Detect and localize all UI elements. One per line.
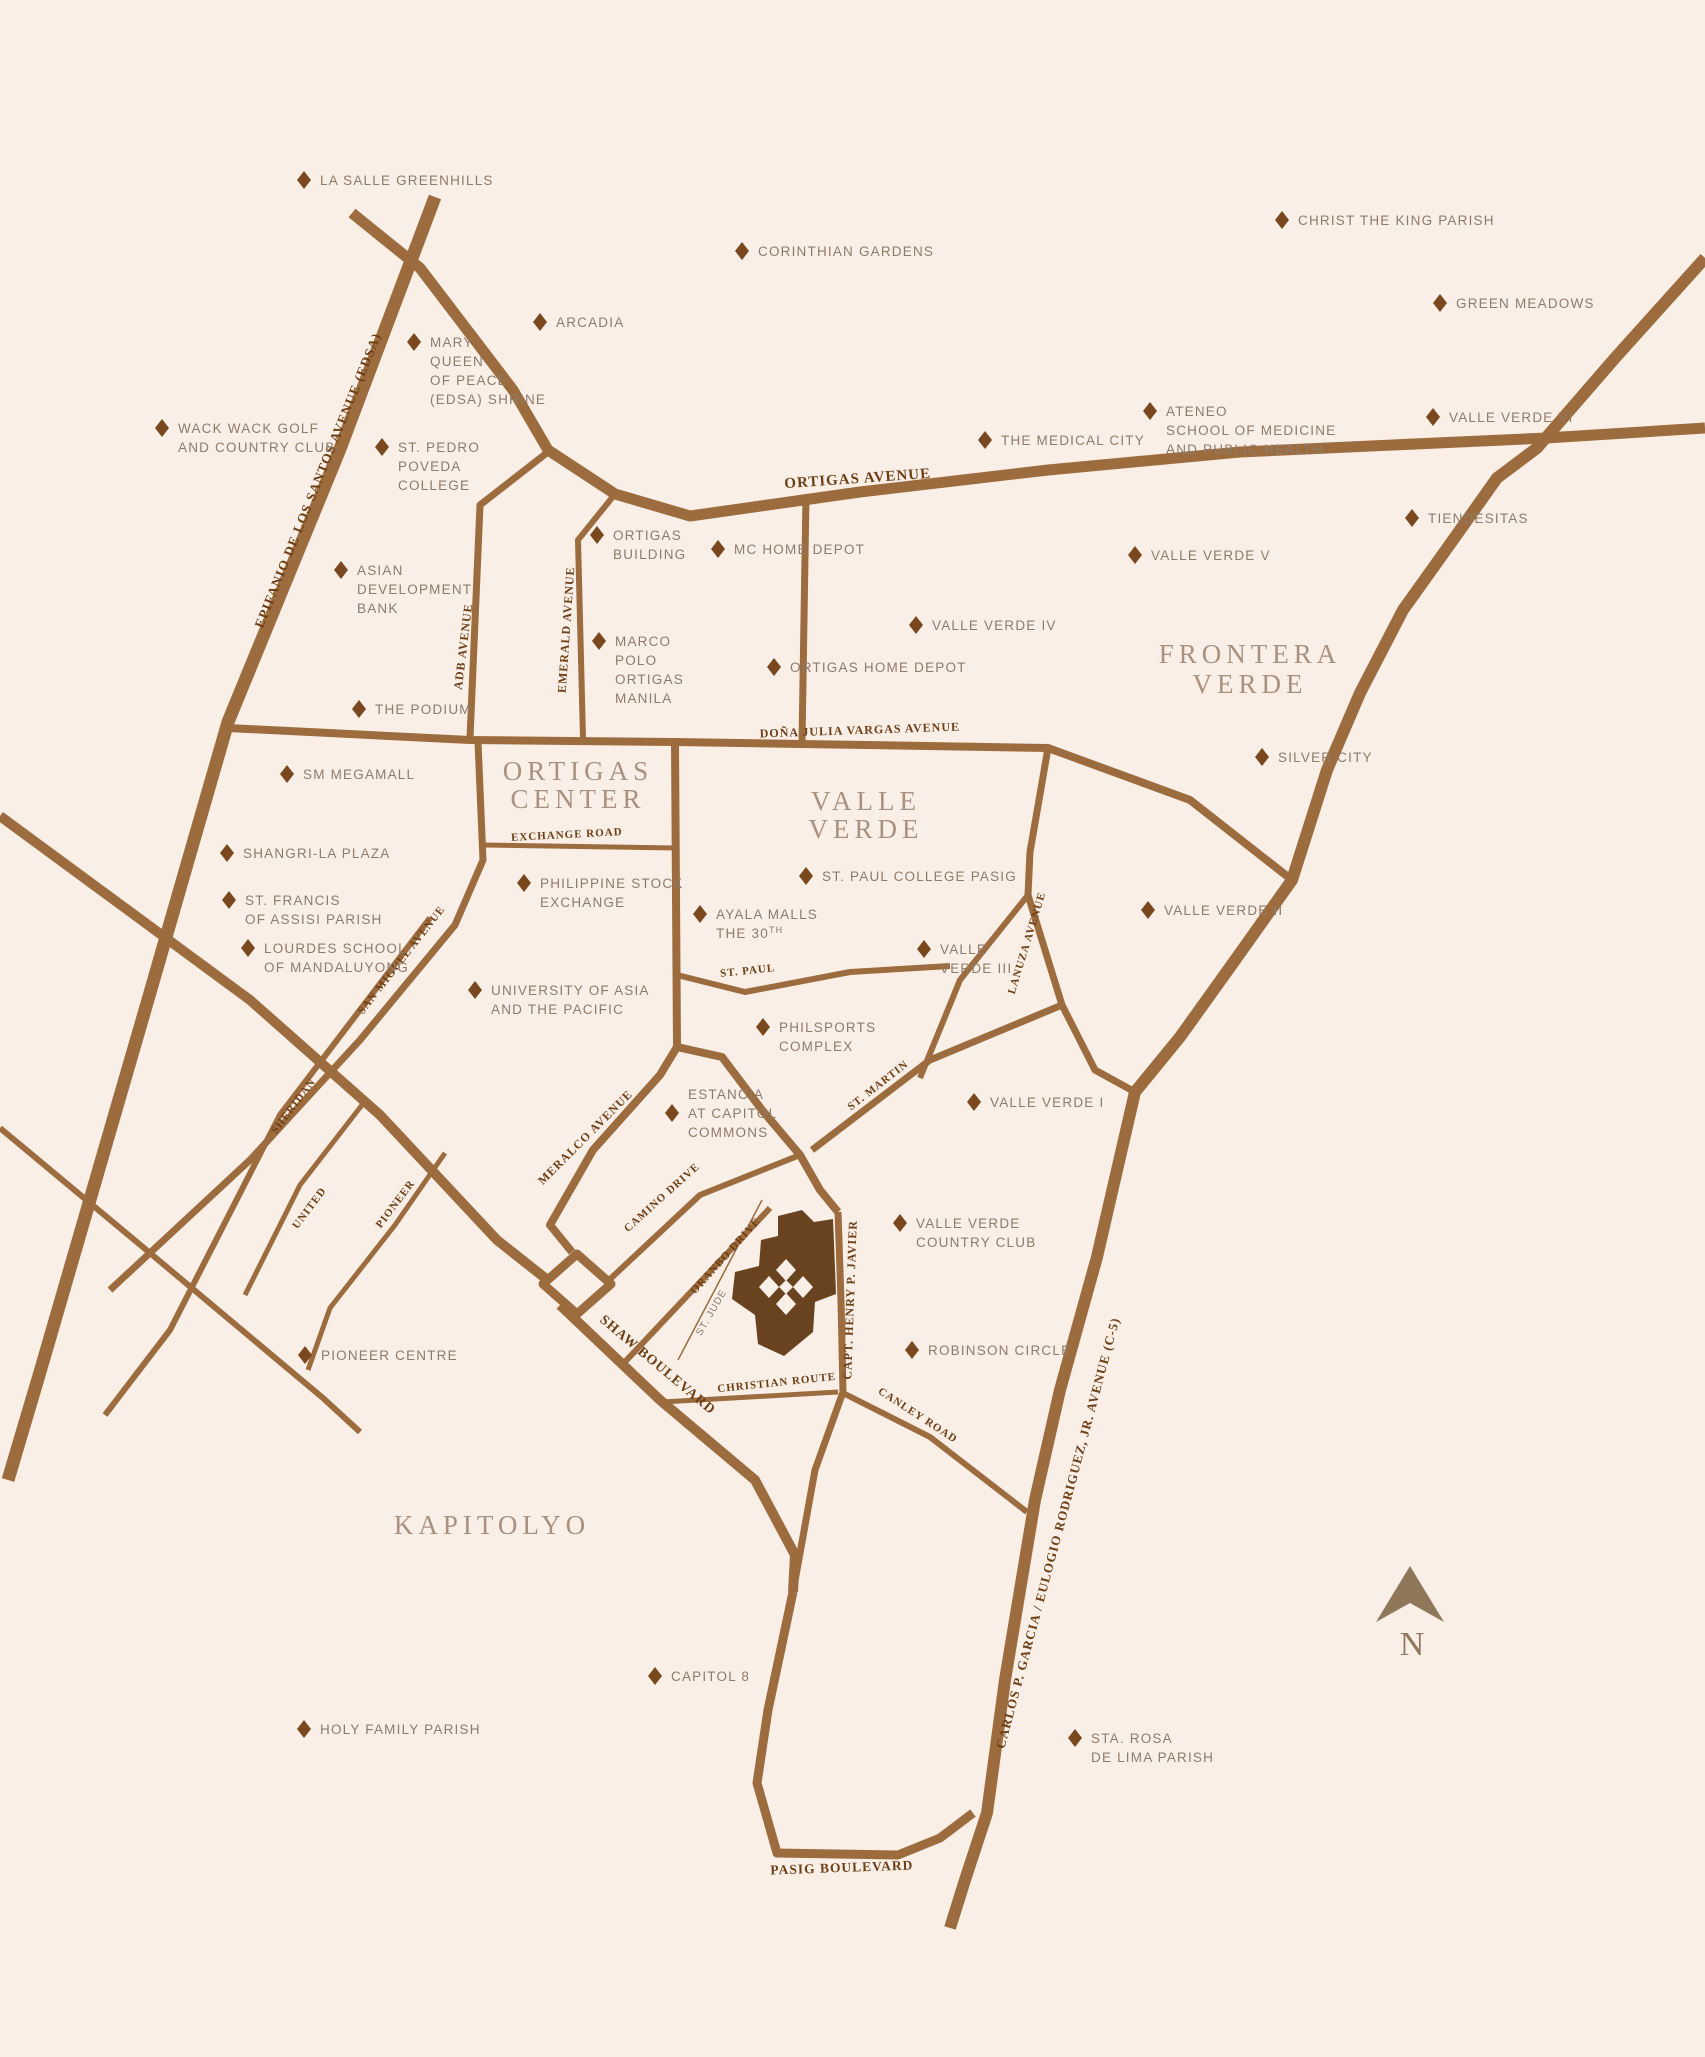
road-valle-verde-west	[802, 497, 806, 742]
poi-label: OF ASSISI PARISH	[245, 912, 382, 927]
road-label-camino-drive: CAMINO DRIVE	[622, 1161, 702, 1235]
poi-label: AND THE PACIFIC	[491, 1002, 624, 1017]
poi-valle-verde-iii: VALLE VERDE III	[917, 940, 1012, 976]
poi-diamond-icon	[517, 874, 531, 892]
poi-diamond-icon	[1068, 1729, 1082, 1747]
poi-label: ASIAN	[357, 563, 404, 578]
poi-label: AND PUBLIC HEALTH	[1166, 442, 1323, 457]
map-canvas: ORTIGAS AVENUE EPIFANIO DE LOS SANTOS AV…	[0, 0, 1705, 2057]
area-label-kapitolyo: KAPITOLYO	[394, 1510, 590, 1540]
poi-label: ESTANCIA	[688, 1087, 764, 1102]
poi-label: AT CAPITOL	[688, 1106, 777, 1121]
poi-label: LOURDES SCHOOL	[264, 941, 407, 956]
poi-label: STA. ROSA	[1091, 1731, 1173, 1746]
road-adb-avenue	[470, 452, 548, 738]
north-arrow-icon	[1376, 1566, 1444, 1622]
poi-diamond-icon	[1128, 546, 1142, 564]
road-label-julia-vargas: DOÑA JULIA VARGAS AVENUE	[759, 720, 960, 741]
poi-shangri-la-plaza: SHANGRI-LA PLAZA	[220, 844, 391, 862]
poi-label: VALLE VERDE II	[1164, 903, 1283, 918]
poi-diamond-icon	[297, 1720, 311, 1738]
road-lanuza-avenue	[1028, 748, 1135, 1092]
road-label-sheridan: SHERIDAN	[269, 1076, 318, 1136]
poi-capitol-8: CAPITOL 8	[648, 1667, 750, 1685]
poi-label: DE LIMA PARISH	[1091, 1750, 1214, 1765]
poi-label: VALLE VERDE VI	[1449, 410, 1574, 425]
poi-sm-megamall: SM MEGAMALL	[280, 765, 415, 783]
poi-label: ST. PEDRO	[398, 440, 480, 455]
poi-holy-family-parish: HOLY FAMILY PARISH	[297, 1720, 481, 1738]
poi-wack-wack-golf: WACK WACK GOLF AND COUNTRY CLUB	[155, 419, 335, 455]
road-pioneer	[308, 1153, 445, 1370]
poi-label: POVEDA	[398, 459, 461, 474]
poi-label: COUNTRY CLUB	[916, 1235, 1036, 1250]
poi-philippine-stock-exchange: PHILIPPINE STOCK EXCHANGE	[517, 874, 684, 910]
poi-label: PHILSPORTS	[779, 1020, 876, 1035]
poi-valle-verde-i: VALLE VERDE I	[967, 1093, 1104, 1111]
poi-the-podium: THE PODIUM	[352, 700, 472, 718]
poi-christ-the-king-parish: CHRIST THE KING PARISH	[1275, 211, 1495, 229]
area-label-frontera-verde: VERDE	[1193, 669, 1308, 699]
poi-label: AND COUNTRY CLUB	[178, 440, 335, 455]
area-label-valle-verde: VERDE	[809, 814, 924, 844]
poi-asian-development-bank: ASIAN DEVELOPMENT BANK	[334, 561, 472, 616]
poi-diamond-icon	[905, 1341, 919, 1359]
poi-st-francis-of-assisi: ST. FRANCIS OF ASSISI PARISH	[222, 891, 382, 927]
poi-sta-rosa-de-lima: STA. ROSA DE LIMA PARISH	[1068, 1729, 1214, 1765]
poi-label: VALLE VERDE	[916, 1216, 1021, 1231]
poi-label-text: THE 30	[716, 926, 769, 941]
poi-label-superscript: TH	[769, 925, 783, 935]
road-label-exchange-road: EXCHANGE ROAD	[511, 826, 623, 844]
poi-valle-verde-v: VALLE VERDE V	[1128, 546, 1271, 564]
poi-diamond-icon	[297, 171, 311, 189]
road-network	[0, 197, 1705, 1928]
poi-label: MARCO	[615, 634, 671, 649]
poi-diamond-icon	[155, 419, 169, 437]
poi-label: WACK WACK GOLF	[178, 421, 319, 436]
poi-valle-verde-country-club: VALLE VERDE COUNTRY CLUB	[893, 1214, 1036, 1250]
area-label-ortigas-center: ORTIGAS	[503, 756, 653, 786]
poi-diamond-icon	[1141, 901, 1155, 919]
poi-diamond-icon	[799, 867, 813, 885]
poi-diamond-icon	[280, 765, 294, 783]
poi-label: PIONEER CENTRE	[321, 1348, 458, 1363]
poi-label: PHILIPPINE STOCK	[540, 876, 684, 891]
poi-diamond-icon	[693, 905, 707, 923]
road-c5	[950, 258, 1705, 1928]
poi-diamond-icon	[756, 1018, 770, 1036]
poi-label: DEVELOPMENT	[357, 582, 472, 597]
road-san-miguel-avenue	[110, 742, 483, 1290]
area-label-frontera-verde: FRONTERA	[1159, 639, 1342, 669]
poi-green-meadows: GREEN MEADOWS	[1433, 294, 1595, 312]
area-label-ortigas-center: CENTER	[511, 784, 646, 814]
poi-valle-verde-iv: VALLE VERDE IV	[909, 616, 1057, 634]
poi-diamond-icon	[1255, 748, 1269, 766]
poi-label: LA SALLE GREENHILLS	[320, 173, 494, 188]
poi-diamond-icon	[590, 526, 604, 544]
road-pasig-boulevard	[757, 1592, 973, 1855]
poi-label: ST. FRANCIS	[245, 893, 341, 908]
poi-label: ST. PAUL COLLEGE PASIG	[822, 869, 1017, 884]
poi-label: MARY	[430, 335, 474, 350]
poi-st-pedro-poveda-college: ST. PEDRO POVEDA COLLEGE	[375, 438, 480, 493]
poi-label: COLLEGE	[398, 478, 470, 493]
poi-diamond-icon	[407, 333, 421, 351]
road-label-pasig-boulevard: PASIG BOULEVARD	[770, 1858, 914, 1878]
poi-label: (EDSA) SHRINE	[430, 392, 546, 407]
poi-diamond-icon	[978, 431, 992, 449]
poi-lourdes-school: LOURDES SCHOOL OF MANDALUYONG	[241, 939, 409, 975]
poi-label: CHRIST THE KING PARISH	[1298, 213, 1495, 228]
poi-tiendesitas: TIENDESITAS	[1405, 509, 1529, 527]
poi-label: THE 30TH	[716, 925, 783, 941]
poi-label: UNIVERSITY OF ASIA	[491, 983, 650, 998]
poi-mc-home-depot: MC HOME DEPOT	[711, 540, 865, 558]
poi-label: TIENDESITAS	[1428, 511, 1529, 526]
poi-label: BANK	[357, 601, 399, 616]
poi-diamond-icon	[735, 242, 749, 260]
road-united	[245, 1105, 362, 1295]
poi-diamond-icon	[352, 700, 366, 718]
poi-diamond-icon	[909, 616, 923, 634]
road-canley-road	[843, 1393, 1027, 1512]
poi-diamond-icon	[1426, 408, 1440, 426]
poi-arcadia: ARCADIA	[533, 313, 624, 331]
vicinity-map: ORTIGAS AVENUE EPIFANIO DE LOS SANTOS AV…	[0, 0, 1705, 2057]
poi-label: OF MANDALUYONG	[264, 960, 409, 975]
poi-valle-verde-ii: VALLE VERDE II	[1141, 901, 1283, 919]
poi-label: ORTIGAS	[613, 528, 682, 543]
poi-label: MC HOME DEPOT	[734, 542, 865, 557]
poi-st-paul-college-pasig: ST. PAUL COLLEGE PASIG	[799, 867, 1017, 885]
poi-diamond-icon	[893, 1214, 907, 1232]
road-label-st-paul: ST. PAUL	[720, 962, 776, 980]
poi-label: ORTIGAS	[615, 672, 684, 687]
poi-label: OF PEACE	[430, 373, 508, 388]
poi-label: VALLE VERDE IV	[932, 618, 1057, 633]
poi-ortigas-home-depot: ORTIGAS HOME DEPOT	[767, 658, 967, 676]
poi-diamond-icon	[533, 313, 547, 331]
poi-ortigas-building: ORTIGAS BUILDING	[590, 526, 686, 562]
poi-marco-polo-ortigas: MARCO POLO ORTIGAS MANILA	[592, 632, 684, 706]
poi-label: VERDE III	[940, 961, 1012, 976]
poi-label: CORINTHIAN GARDENS	[758, 244, 934, 259]
poi-label: THE PODIUM	[375, 702, 472, 717]
poi-label: GREEN MEADOWS	[1456, 296, 1595, 311]
poi-estancia-capitol-commons: ESTANCIA AT CAPITOL COMMONS	[665, 1087, 777, 1140]
poi-label: BUILDING	[613, 547, 686, 562]
poi-diamond-icon	[1433, 294, 1447, 312]
poi-label: VALLE VERDE I	[990, 1095, 1104, 1110]
poi-diamond-icon	[241, 939, 255, 957]
poi-corinthian-gardens: CORINTHIAN GARDENS	[735, 242, 934, 260]
poi-label: VALLE VERDE V	[1151, 548, 1271, 563]
road-shaw-boulevard	[560, 1305, 795, 1592]
poi-robinson-circle: ROBINSON CIRCLE	[905, 1341, 1071, 1359]
poi-diamond-icon	[334, 561, 348, 579]
area-label-valle-verde: VALLE	[811, 786, 921, 816]
poi-label: ARCADIA	[556, 315, 624, 330]
poi-label: CAPITOL 8	[671, 1669, 750, 1684]
north-compass: N	[1376, 1566, 1444, 1663]
poi-diamond-icon	[767, 658, 781, 676]
poi-label: QUEEN	[430, 354, 484, 369]
poi-the-medical-city: THE MEDICAL CITY	[978, 431, 1145, 449]
road-label-meralco: MERALCO AVENUE	[535, 1087, 636, 1188]
poi-label: SCHOOL OF MEDICINE	[1166, 423, 1336, 438]
poi-diamond-icon	[222, 891, 236, 909]
poi-label: MANILA	[615, 691, 672, 706]
road-exchange-road	[483, 845, 677, 848]
poi-label: ROBINSON CIRCLE	[928, 1343, 1071, 1358]
north-label: N	[1400, 1626, 1425, 1663]
poi-label: ATENEO	[1166, 404, 1228, 419]
poi-ateneo-school-of-medicine: ATENEO SCHOOL OF MEDICINE AND PUBLIC HEA…	[1143, 402, 1336, 457]
poi-university-of-asia-pacific: UNIVERSITY OF ASIA AND THE PACIFIC	[468, 981, 650, 1017]
poi-diamond-icon	[592, 632, 606, 650]
poi-diamond-icon	[711, 540, 725, 558]
road-shaw-rotunda	[543, 1254, 611, 1314]
poi-diamond-icon	[1405, 509, 1419, 527]
poi-label: ORTIGAS HOME DEPOT	[790, 660, 967, 675]
poi-label: EXCHANGE	[540, 895, 625, 910]
poi-diamond-icon	[220, 844, 234, 862]
poi-la-salle-greenhills: LA SALLE GREENHILLS	[297, 171, 494, 189]
poi-label: COMMONS	[688, 1125, 768, 1140]
poi-valle-verde-vi: VALLE VERDE VI	[1426, 408, 1574, 426]
poi-diamond-icon	[1275, 211, 1289, 229]
poi-label: AYALA MALLS	[716, 907, 818, 922]
poi-ayala-malls-the-30th: AYALA MALLS THE 30TH	[693, 905, 818, 941]
road-label-capt-henry-javier: CAPT. HENRY P. JAVIER	[840, 1220, 860, 1380]
poi-label: HOLY FAMILY PARISH	[320, 1722, 481, 1737]
poi-silver-city: SILVER CITY	[1255, 748, 1373, 766]
poi-diamond-icon	[1143, 402, 1157, 420]
poi-label: THE MEDICAL CITY	[1001, 433, 1145, 448]
poi-label: VALLE	[940, 942, 987, 957]
poi-diamond-icon	[967, 1093, 981, 1111]
poi-label: SILVER CITY	[1278, 750, 1373, 765]
road-label-emerald-avenue: EMERALD AVENUE	[555, 566, 578, 693]
poi-label: SM MEGAMALL	[303, 767, 415, 782]
poi-label: POLO	[615, 653, 657, 668]
poi-label: COMPLEX	[779, 1039, 853, 1054]
poi-diamond-icon	[375, 438, 389, 456]
road-st-paul	[677, 966, 950, 992]
poi-diamond-icon	[468, 981, 482, 999]
poi-philsports-complex: PHILSPORTS COMPLEX	[756, 1018, 876, 1054]
poi-diamond-icon	[917, 940, 931, 958]
poi-label: SHANGRI-LA PLAZA	[243, 846, 391, 861]
poi-pioneer-centre: PIONEER CENTRE	[298, 1346, 458, 1364]
poi-diamond-icon	[648, 1667, 662, 1685]
road-edsa	[8, 197, 435, 1480]
poi-diamond-icon	[665, 1104, 679, 1122]
